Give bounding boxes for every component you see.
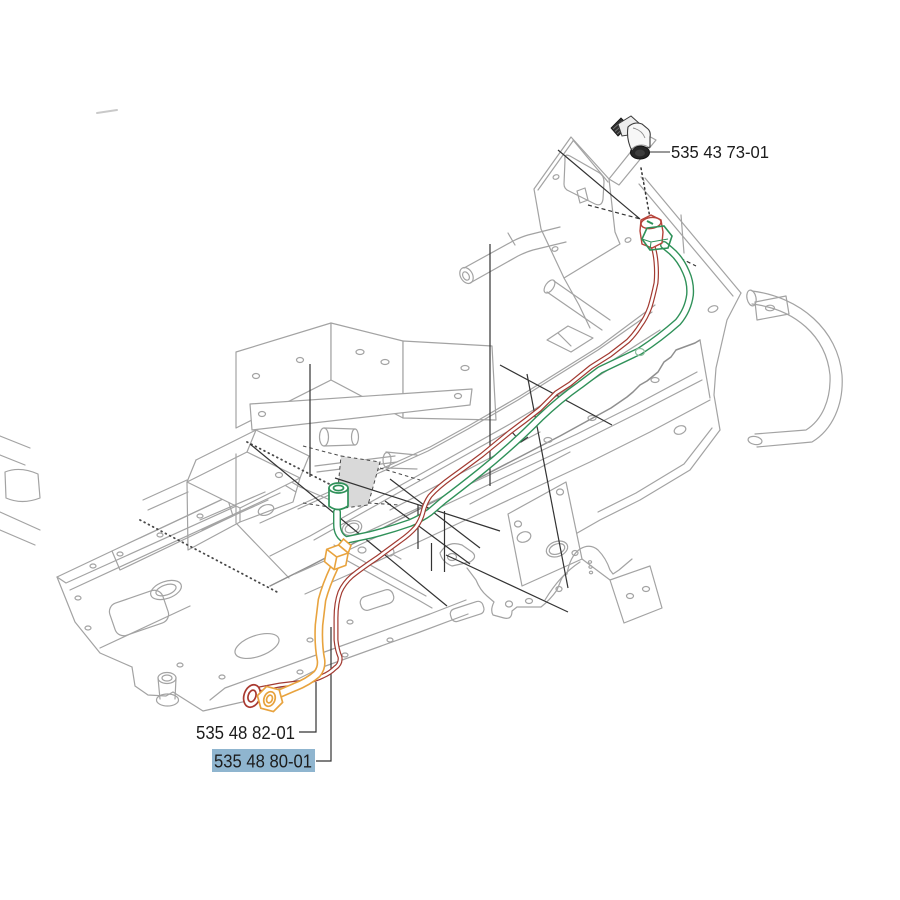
svg-text:535 48 80-01: 535 48 80-01 [214,752,312,772]
svg-text:535 48 82-01: 535 48 82-01 [196,723,295,743]
svg-text:535 43 73-01: 535 43 73-01 [671,142,769,162]
